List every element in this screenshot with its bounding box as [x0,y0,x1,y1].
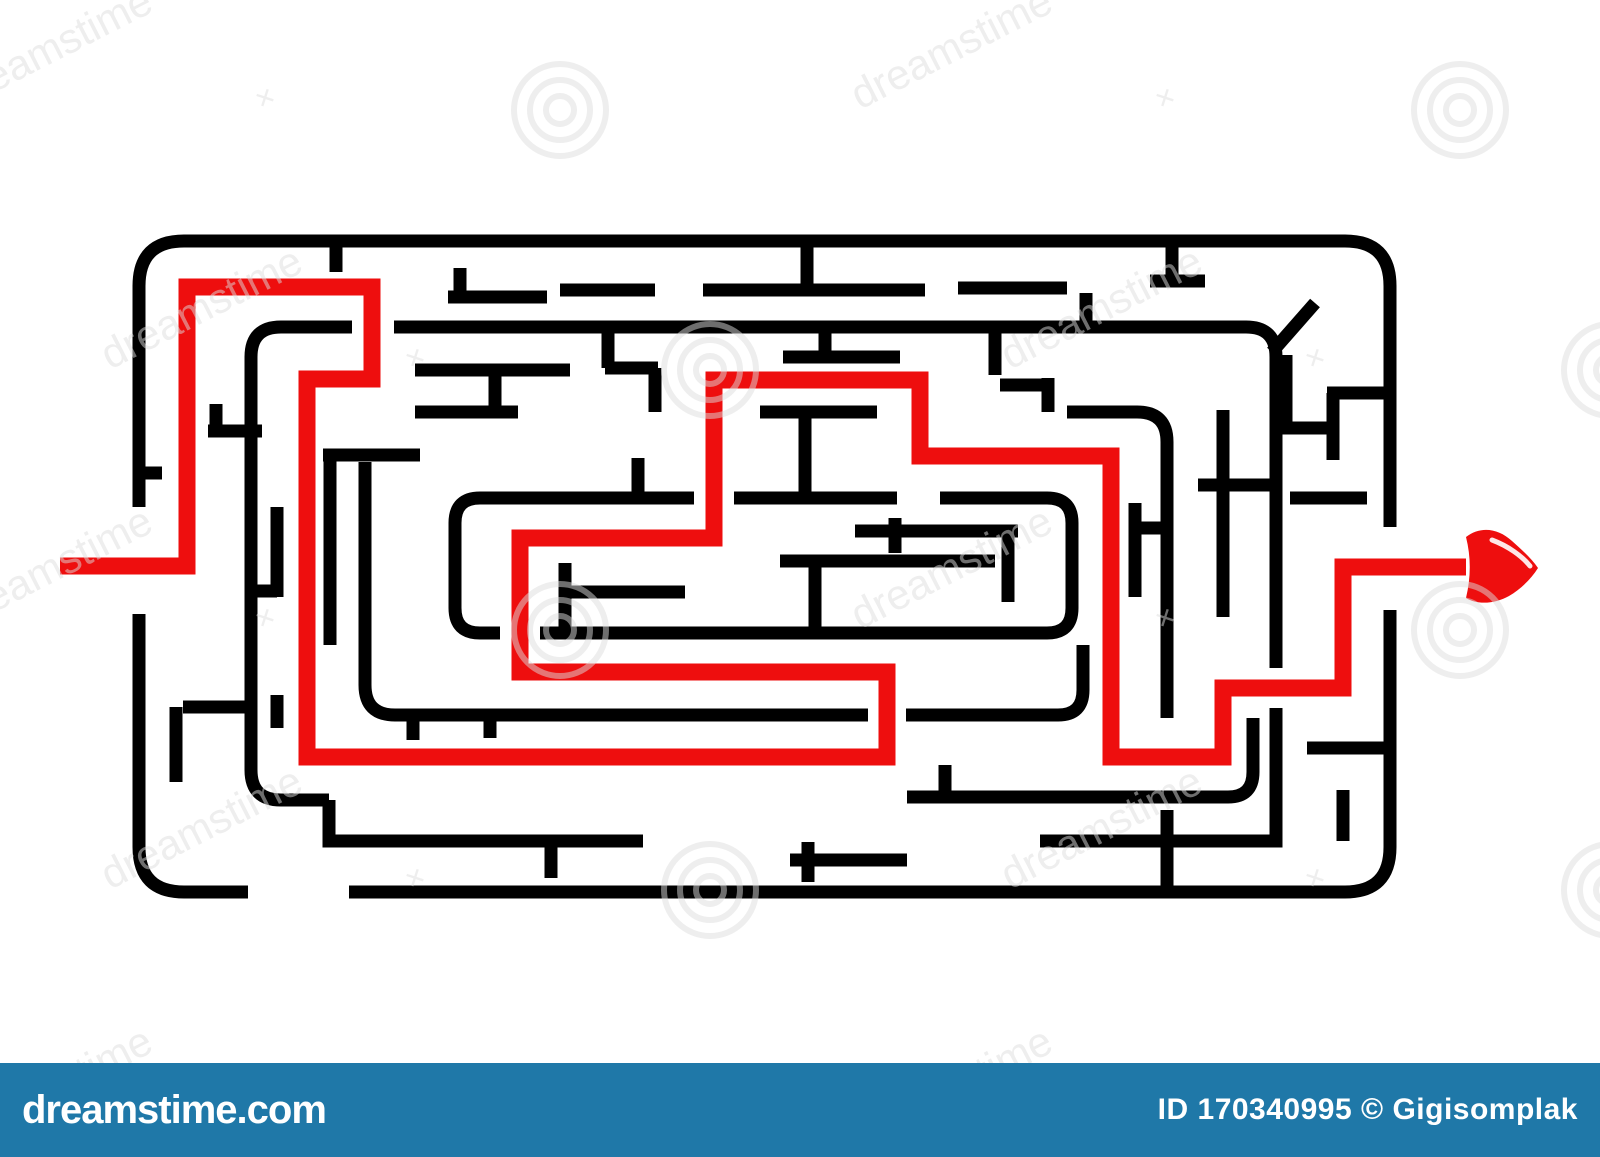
svg-text:dreamstime: dreamstime [93,237,310,378]
svg-text:dreamstime: dreamstime [0,0,160,118]
maze-illustration: dreamstime✕dreamstime✕dreamstime✕dreamst… [0,0,1600,1157]
image-credit-id: ID 170340995 © Gigisomplak [1158,1093,1578,1127]
dreamstime-logo: dreamstime.com [22,1088,326,1133]
svg-text:dreamstime: dreamstime [843,0,1060,118]
watermark-bar: dreamstime.com ID 170340995 © Gigisompla… [0,1063,1600,1157]
svg-text:dreamstime: dreamstime [993,237,1210,378]
watermark-tiles: dreamstime✕dreamstime✕dreamstime✕dreamst… [0,0,1600,1157]
svg-text:✕: ✕ [1150,602,1180,635]
svg-text:✕: ✕ [1150,82,1180,115]
svg-text:dreamstime: dreamstime [993,757,1210,898]
svg-text:✕: ✕ [1300,342,1330,375]
svg-text:✕: ✕ [250,82,280,115]
svg-text:dreamstime: dreamstime [93,757,310,898]
stock-image-preview: dreamstime✕dreamstime✕dreamstime✕dreamst… [0,0,1600,1157]
